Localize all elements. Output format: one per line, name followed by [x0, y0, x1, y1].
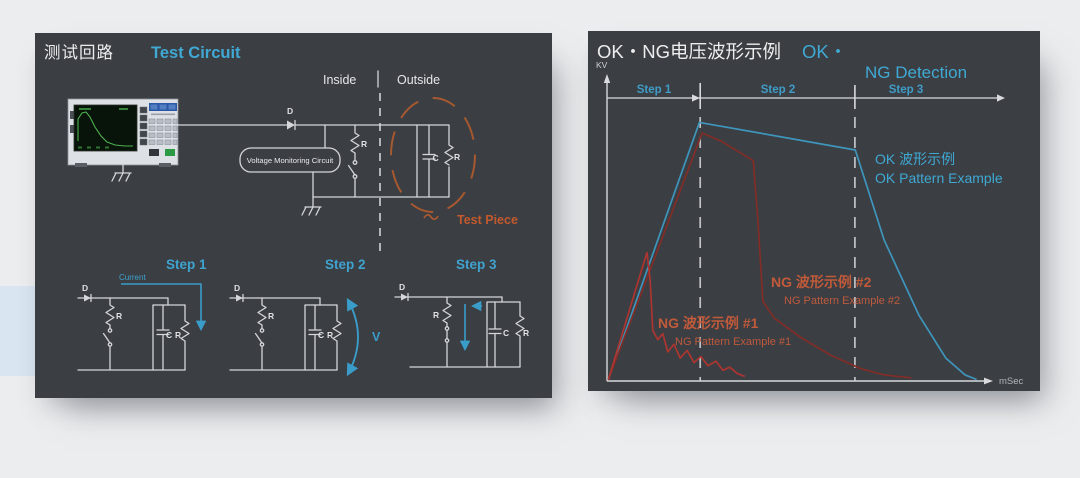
ng1-annotation-zh: NG 波形示例 #1 — [658, 315, 759, 331]
resistor-label-main: R — [361, 139, 367, 149]
outside-label: Outside — [397, 73, 440, 87]
ok-annotation-zh: OK 波形示例 — [875, 151, 955, 167]
ground-symbol-device — [112, 165, 131, 181]
device-stop-button — [149, 149, 159, 156]
resistor-label: R — [175, 330, 181, 340]
ground-symbol-circuit — [302, 197, 321, 215]
left-panel-title-en: Test Circuit — [151, 44, 241, 62]
ng2-annotation-zh: NG 波形示例 #2 — [771, 274, 872, 290]
test-circuit-panel: 测试回路 Test Circuit Inside Outside — [35, 33, 552, 398]
step3-label: Step 3 — [456, 257, 497, 272]
voltage-monitoring-circuit-label: Voltage Monitoring Circuit — [247, 156, 334, 165]
y-axis-label: KV — [596, 60, 608, 70]
diode-label: D — [399, 282, 405, 292]
impulse-tester-device — [68, 99, 178, 167]
resistor-label-test-piece: R — [454, 152, 460, 162]
ng2-annotation-en: NG Pattern Example #2 — [784, 295, 900, 307]
resistor-label: R — [116, 311, 122, 321]
left-panel-title-zh: 测试回路 — [44, 43, 114, 62]
resistor-label: R — [327, 330, 333, 340]
ok-annotation-en: OK Pattern Example — [875, 170, 1003, 186]
device-screen — [74, 105, 137, 151]
step3-ruler-arrowhead — [997, 94, 1005, 101]
step3-circuit: Step 3 D R C R — [395, 257, 529, 367]
resistor-label: R — [268, 311, 274, 321]
diode-symbol — [84, 295, 91, 302]
right-panel-title-en: NG Detection — [865, 63, 967, 82]
y-axis-arrowhead — [604, 74, 610, 83]
test-piece-label: Test Piece — [457, 213, 518, 227]
diode-label-main: D — [287, 106, 293, 116]
current-label: Current — [119, 273, 146, 282]
inside-label: Inside — [323, 73, 356, 87]
resistor-label: R — [523, 328, 529, 338]
chart-step1-label: Step 1 — [637, 84, 672, 96]
diode-symbol — [236, 295, 243, 302]
step2-label: Step 2 — [325, 257, 366, 272]
waveform-chart-panel: OK・NG电压波形示例 OK・ NG Detection KV mSec Ste… — [588, 31, 1040, 391]
test-piece-squiggle-icon — [424, 215, 438, 219]
step1-label: Step 1 — [166, 257, 207, 272]
voltage-label: V — [372, 330, 381, 344]
diode-symbol-main — [287, 121, 295, 130]
current-flow-arrow — [121, 284, 201, 329]
chart-step2-label: Step 2 — [761, 84, 796, 96]
chart-step3-label: Step 3 — [889, 84, 924, 96]
test-circuit-diagram: 测试回路 Test Circuit Inside Outside — [35, 33, 552, 398]
main-circuit: D Voltage Monitoring Circuit R R C Test … — [178, 98, 518, 227]
capacitor-label: C — [318, 330, 324, 340]
diode-label: D — [82, 283, 88, 293]
test-piece-network: R C — [417, 125, 460, 197]
step1-circuit: Step 1 Current D R C R — [78, 257, 207, 370]
device-start-button — [165, 149, 175, 156]
right-panel-title-zh: OK・NG电压波形示例 — [597, 41, 781, 62]
step2-circuit: Step 2 D R C R V — [230, 257, 381, 374]
right-panel-title-accent: OK・ — [802, 41, 847, 62]
capacitor-label: C — [166, 330, 172, 340]
switch-contact — [353, 161, 357, 165]
diode-label: D — [234, 283, 240, 293]
resistor-label: R — [433, 310, 439, 320]
step1-ruler-arrowhead — [692, 94, 700, 101]
ng1-annotation-en: NG Pattern Example #1 — [675, 336, 791, 348]
voltage-arrow — [348, 300, 358, 374]
x-axis-arrowhead — [984, 378, 993, 385]
capacitor-label: C — [503, 328, 509, 338]
x-axis-label: mSec — [999, 376, 1024, 387]
diode-symbol — [401, 294, 408, 301]
capacitor-label-test-piece: C — [433, 153, 439, 163]
ok-ng-waveform-chart: OK・NG电压波形示例 OK・ NG Detection KV mSec Ste… — [588, 31, 1040, 391]
